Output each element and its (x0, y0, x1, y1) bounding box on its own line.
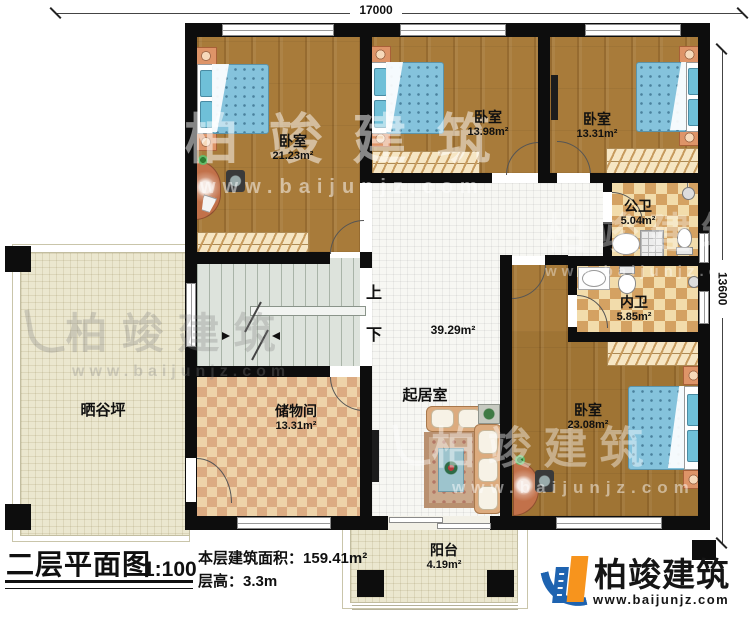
door-opening (186, 458, 196, 502)
stair-arrow-icon (272, 332, 280, 340)
stairs-down-label: 下 (366, 327, 382, 345)
window (699, 233, 709, 263)
pillar (357, 570, 384, 597)
wall (360, 366, 372, 516)
room-label-living: 起居室 (385, 388, 465, 405)
page-title: 二层平面图 (6, 549, 151, 580)
coffee-table (438, 448, 464, 492)
stair-arrow-icon (222, 332, 230, 340)
wall (185, 366, 330, 377)
top-dimension-label: 17000 (350, 4, 402, 17)
right-dimension-label: 13600 (715, 260, 728, 318)
room-label-balcony: 阳台 4.19m² (404, 543, 484, 571)
side-table (478, 404, 500, 424)
wall (698, 23, 710, 530)
room-area-living: 39.29m² (413, 324, 493, 337)
wall (538, 23, 550, 183)
window (186, 283, 196, 347)
logo-mark-icon (545, 556, 593, 612)
wall (360, 252, 372, 268)
scale-label: 1:100 (143, 558, 197, 582)
office-chair (226, 170, 245, 192)
balcony-railing (352, 605, 518, 610)
room-label-terrace: 晒谷坪 (63, 403, 143, 420)
room-label-storage: 储物间 13.31m² (252, 404, 340, 432)
stair-handrail (250, 306, 366, 316)
watermark-glyph-icon (135, 103, 184, 165)
plant-icon (198, 155, 208, 165)
window (585, 24, 681, 36)
window (237, 517, 331, 529)
window (222, 24, 334, 36)
room-label-public-bath: 公卫 5.04m² (605, 199, 671, 227)
logo-company-name: 柏竣建筑 (594, 557, 730, 594)
floor-area-line: 本层建筑面积：159.41m² (198, 551, 367, 568)
bed (628, 386, 702, 468)
sliding-door-panel (389, 517, 443, 523)
floor-height-line: 层高：3.3m (198, 574, 277, 591)
terrace-floor (20, 252, 190, 536)
sliding-door-panel (437, 523, 491, 529)
closet (606, 148, 702, 174)
window (400, 24, 506, 36)
wall (568, 256, 710, 266)
sofa-cushion (431, 409, 454, 428)
wall (360, 23, 372, 183)
wall (568, 332, 710, 342)
bed (371, 62, 442, 132)
tv-icon (372, 430, 379, 482)
room-label-bedroom-top-mid: 卧室 13.98m² (448, 110, 528, 138)
stairs-up-label: 上 (366, 285, 382, 303)
title-underline (5, 588, 193, 589)
wall (603, 222, 612, 258)
floor-plan: 17000 13600 上 下 (0, 0, 750, 625)
wall (500, 255, 512, 517)
sink-icon (612, 233, 640, 255)
toilet-icon (618, 266, 636, 295)
toilet-icon (676, 228, 693, 256)
shower-icon (640, 230, 664, 257)
room-label-ensuite-bath: 内卫 5.85m² (600, 295, 668, 323)
room-label-bedroom-top-left: 卧室 21.23m² (253, 134, 333, 162)
wall (603, 183, 612, 192)
pillar (487, 570, 514, 597)
hanging-lamp-icon (682, 187, 695, 200)
wall (568, 266, 577, 295)
wall (500, 255, 512, 265)
bed (636, 62, 702, 130)
office-chair (535, 470, 554, 492)
window (556, 517, 662, 529)
pillar (5, 246, 31, 272)
sofa-set (420, 404, 504, 514)
nightstand (370, 46, 391, 63)
room-label-bedroom-top-right: 卧室 13.31m² (557, 112, 637, 140)
wall (360, 173, 492, 183)
closet (372, 151, 480, 175)
window (699, 291, 709, 324)
sofa-cushion (478, 458, 498, 482)
nightstand (195, 47, 217, 65)
wall (185, 252, 330, 264)
bed (197, 64, 267, 132)
wall (538, 173, 557, 183)
plant-icon (515, 455, 525, 465)
nightstand (679, 46, 700, 63)
sofa-cushion (478, 486, 498, 510)
sink-icon (582, 270, 606, 287)
nightstand (195, 133, 217, 151)
pillar (5, 504, 31, 530)
sofa-cushion (478, 430, 498, 454)
logo-website: www.baijunjz.com (593, 593, 729, 608)
wall (590, 173, 710, 183)
room-label-bedroom-right: 卧室 23.08m² (548, 403, 628, 431)
wall (185, 23, 197, 530)
closet (607, 341, 702, 366)
wall (545, 255, 568, 265)
